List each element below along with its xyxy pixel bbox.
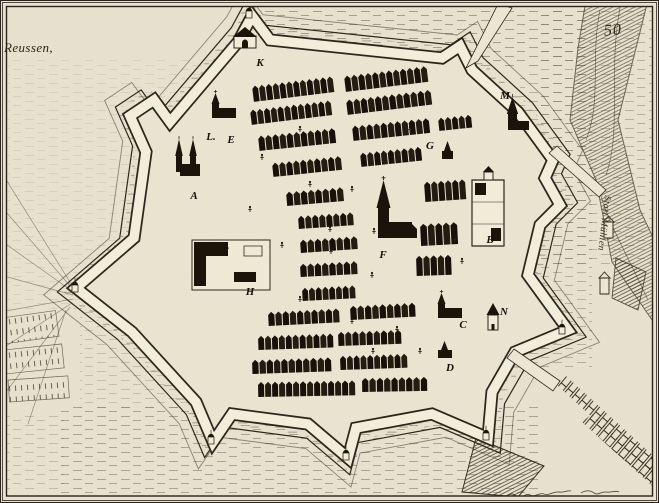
legend-letter-A: A — [190, 190, 197, 202]
legend-markers-layer: KL.EAI.HMGBFCND — [0, 0, 659, 503]
legend-letter-N: N — [500, 306, 508, 318]
legend-letter-I: I. — [222, 240, 229, 252]
map-plate: Reussen, 50 Statt Mühlen KL.EAI.HMGBFCND — [0, 0, 659, 503]
legend-letter-M: M — [500, 90, 510, 102]
legend-letter-G: G — [426, 140, 434, 152]
legend-letter-L: L. — [206, 131, 215, 143]
legend-letter-K: K — [256, 57, 263, 69]
legend-letter-E: E — [227, 134, 234, 146]
legend-letter-F: F — [379, 249, 386, 261]
legend-letter-B: B — [486, 234, 493, 246]
legend-letter-H: H — [246, 286, 255, 298]
legend-letter-D: D — [446, 362, 454, 374]
legend-letter-C: C — [459, 319, 466, 331]
